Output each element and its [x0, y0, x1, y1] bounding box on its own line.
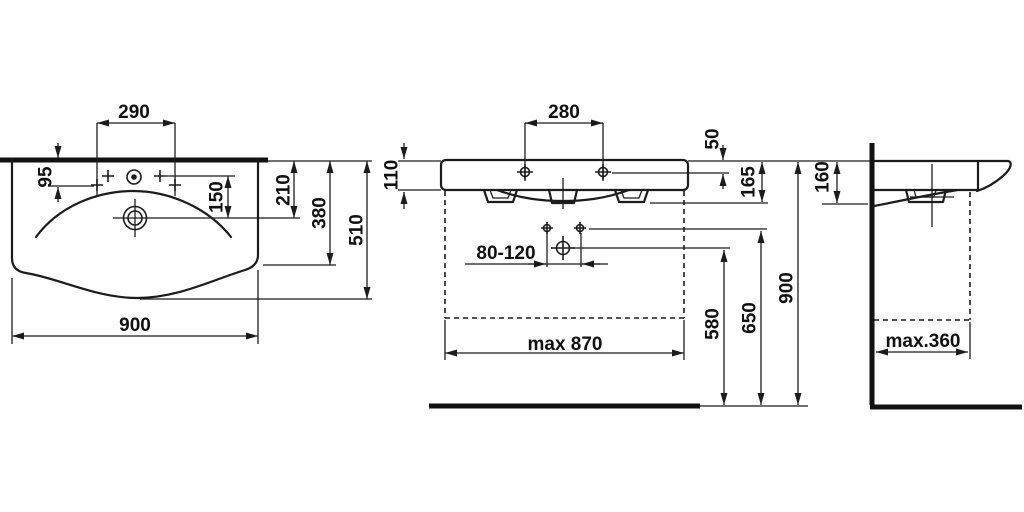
dim-label-95: 95 [36, 166, 57, 188]
dim-label-160: 160 [813, 161, 834, 193]
dim-label-900-height: 900 [777, 272, 798, 304]
dim-label-650: 650 [740, 302, 761, 334]
dim-label-165: 165 [739, 166, 760, 198]
right-bracket [615, 190, 648, 202]
dim-label-80-120: 80-120 [476, 243, 535, 264]
dim-label-280: 280 [548, 102, 580, 123]
dim-label-900-width: 900 [119, 315, 151, 336]
plan-view: 290 95 150 210 380 510 900 [0, 102, 372, 344]
dim-label-max-870: max 870 [527, 334, 602, 355]
dim-label-50: 50 [703, 128, 724, 149]
dim-label-210: 210 [274, 174, 295, 206]
basin-profile [874, 161, 1011, 206]
clearance-box [874, 192, 970, 320]
front-view: 280 110 80-120 max 870 [382, 102, 872, 406]
side-view: 160 max.360 [813, 143, 1022, 407]
drawing-canvas: 290 95 150 210 380 510 900 [0, 0, 1024, 512]
dim-label-max-360: max.360 [885, 331, 960, 352]
dim-label-380: 380 [310, 197, 331, 229]
optional-hole-cross-icons [91, 170, 181, 191]
dim-label-110: 110 [382, 160, 403, 191]
dim-label-150: 150 [207, 181, 228, 213]
basin-front-body [441, 160, 688, 190]
dim-label-290: 290 [118, 102, 150, 123]
dim-label-510: 510 [347, 214, 368, 246]
dim-label-580: 580 [703, 308, 724, 340]
washbasin-dimension-drawing: 290 95 150 210 380 510 900 [0, 0, 1024, 512]
trap-center-icon [551, 236, 575, 260]
fixing-hole-icons [541, 222, 586, 234]
tap-hole-icons [517, 164, 611, 180]
tap-hole-center-icon [131, 174, 137, 180]
